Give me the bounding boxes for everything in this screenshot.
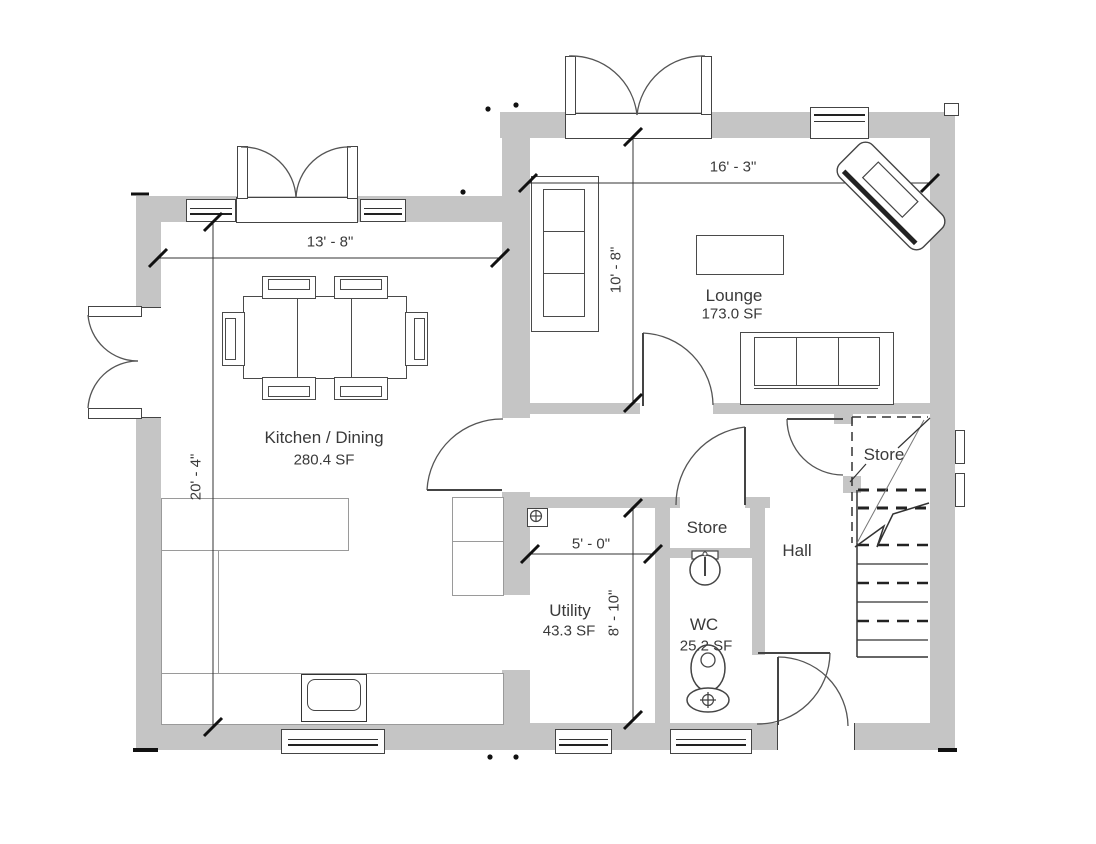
french-door-opening-kitchen xyxy=(236,197,358,223)
french-door-leaf xyxy=(701,56,712,115)
dining-chair xyxy=(222,312,245,366)
corner-notch xyxy=(944,103,959,116)
room-area-utility: 43.3 SF xyxy=(543,623,596,640)
floor-plan: Kitchen / Dining 280.4 SF Lounge 173.0 S… xyxy=(0,0,1096,844)
dim-utility-depth: 8' - 10" xyxy=(606,590,623,637)
room-label-utility: Utility xyxy=(549,601,591,621)
wall-stair-jamb-b xyxy=(843,476,861,493)
coffee-table xyxy=(696,235,784,275)
patio-door-leaf xyxy=(88,306,142,317)
dim-utility-width: 5' - 0" xyxy=(572,536,610,553)
french-door-leaf xyxy=(237,146,248,199)
window-kitchen-top-left xyxy=(186,199,236,222)
room-label-kitchen: Kitchen / Dining xyxy=(264,428,383,448)
wall-right xyxy=(930,112,955,750)
dim-kitchen-depth: 20' - 4" xyxy=(188,454,205,501)
wall-wc-east xyxy=(752,558,765,655)
wall-lounge-west xyxy=(502,112,530,418)
meter-box-upper xyxy=(955,430,965,464)
wall-utility-west-b xyxy=(502,670,530,723)
wall-stair-jamb-a xyxy=(834,403,853,424)
sofa-south xyxy=(740,332,894,405)
window-kitchen-bottom xyxy=(281,729,385,754)
room-area-lounge: 173.0 SF xyxy=(702,306,763,323)
window-lounge-top xyxy=(810,107,869,139)
wall-utility-east xyxy=(655,508,670,723)
appliance-column xyxy=(452,497,504,596)
window-kitchen-top-right xyxy=(360,199,406,222)
dim-lounge-width: 16' - 3" xyxy=(710,159,757,176)
sofa-west xyxy=(531,176,599,332)
room-label-store-closet: Store xyxy=(687,518,728,538)
wall-utility-north xyxy=(502,497,680,508)
dim-lounge-depth: 10' - 8" xyxy=(608,247,625,294)
dining-chair xyxy=(334,377,388,400)
toilet-icon xyxy=(687,645,729,712)
counter-peninsula xyxy=(161,498,349,551)
dim-kitchen-width: 13' - 8" xyxy=(307,234,354,251)
french-door-leaf xyxy=(347,146,358,199)
wall-utility-west-a xyxy=(502,508,530,595)
front-door-opening xyxy=(777,723,855,750)
room-label-hall: Hall xyxy=(782,541,811,561)
wall-store-south xyxy=(655,548,765,558)
dining-chair xyxy=(334,276,388,299)
dining-chair xyxy=(262,276,316,299)
dining-chair xyxy=(262,377,316,400)
wall-left xyxy=(136,196,161,750)
french-door-leaf xyxy=(565,56,576,115)
room-area-wc: 25.2 SF xyxy=(680,638,733,655)
window-wc-bottom xyxy=(670,729,752,754)
kitchen-sink xyxy=(301,674,367,722)
meter-box-lower xyxy=(955,473,965,507)
dining-chair xyxy=(405,312,428,366)
dining-table xyxy=(243,296,407,379)
room-label-wc: WC xyxy=(690,615,718,635)
patio-door-opening-west xyxy=(136,307,161,418)
patio-door-leaf xyxy=(88,408,142,419)
french-door-opening-lounge xyxy=(565,113,712,139)
room-label-lounge: Lounge xyxy=(706,286,763,306)
utility-drain-box xyxy=(527,508,548,527)
room-label-store-stairs: Store xyxy=(864,445,905,465)
wall-lounge-south-a xyxy=(530,403,640,414)
window-utility-bottom xyxy=(555,729,612,754)
stair-break-line xyxy=(855,503,929,547)
room-area-kitchen: 280.4 SF xyxy=(294,452,355,469)
